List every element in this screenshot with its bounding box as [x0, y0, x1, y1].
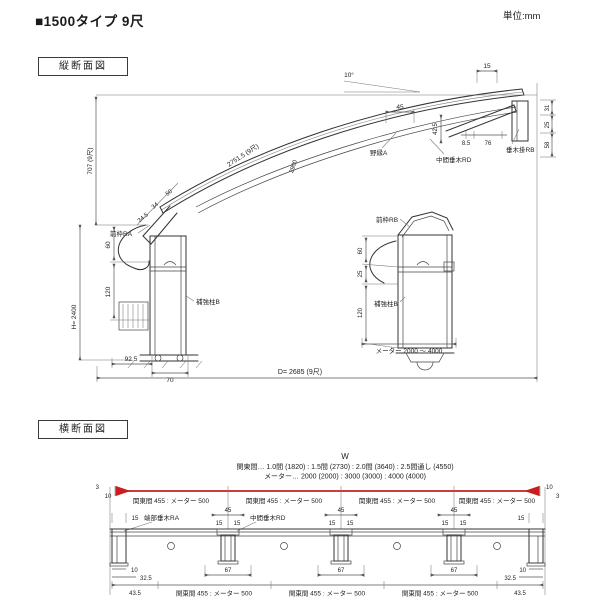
- angle-value: 10°: [344, 71, 354, 79]
- svg-text:67: 67: [338, 568, 345, 574]
- dim-rise: 707 (9尺): [86, 97, 148, 225]
- svg-text:関東間 455 : メーター 500: 関東間 455 : メーター 500: [359, 496, 436, 505]
- svg-text:50: 50: [165, 188, 174, 197]
- svg-text:120: 120: [105, 286, 112, 297]
- svg-text:10: 10: [519, 568, 526, 574]
- svg-text:92.5: 92.5: [125, 356, 138, 363]
- svg-text:60: 60: [105, 241, 112, 249]
- rafter-dims-row: 15 端部垂木RA 45 15 15 中間垂木RD 45 15 15 45 15: [112, 508, 543, 531]
- span-segment-labels: 関東間 455 : メーター 500 関東間 455 : メーター 500 関東…: [115, 486, 540, 529]
- dim-post-height: H= 2400: [71, 225, 132, 360]
- width-note-meter: メーター… 2000 (2000) : 3000 (3000) : 4000 (…: [264, 472, 426, 481]
- section-label-cross: 横断面図: [38, 420, 128, 439]
- svg-text:15: 15: [347, 521, 354, 527]
- svg-text:32.5: 32.5: [504, 576, 516, 582]
- drawing-page: ■1500タイプ 9尺 単位:mm 縦断面図 横断面図: [0, 0, 600, 600]
- svg-text:67: 67: [225, 568, 232, 574]
- svg-text:8.5: 8.5: [462, 141, 471, 147]
- label-post-b-right: 補強柱B: [374, 299, 398, 308]
- dim-left-10: 10: [105, 494, 112, 500]
- dim-right-edge-chain: 31 25 58: [540, 100, 556, 157]
- cross-section-drawing: W 関東間… 1.0間 (1820) : 1.5間 (2730) : 2.0間 …: [0, 445, 600, 600]
- svg-text:58: 58: [545, 141, 551, 148]
- dim-8-5-76: 8.5 76: [461, 131, 507, 147]
- svg-text:関東間 455 : メーター 500: 関東間 455 : メーター 500: [459, 496, 536, 505]
- svg-text:15: 15: [132, 516, 139, 522]
- dim-curve-note: 2900: [289, 159, 299, 174]
- label-mid-rafter-rd: 中間垂木RD: [250, 513, 286, 522]
- label-mid-rafter-rd: 中間垂木RD: [436, 155, 472, 164]
- svg-text:関東間 455 : メーター 500: 関東間 455 : メーター 500: [133, 496, 210, 505]
- svg-text:43.5: 43.5: [514, 591, 526, 597]
- svg-text:43.5: 43.5: [129, 591, 141, 597]
- svg-text:関東間 455 : メーター 500: 関東間 455 : メーター 500: [289, 589, 366, 598]
- width-note-kanto: 関東間… 1.0間 (1820) : 1.5間 (2730) : 2.0間 (3…: [236, 462, 453, 471]
- svg-text:76: 76: [485, 141, 492, 147]
- roof-panel-curves: [160, 89, 524, 213]
- svg-text:31: 31: [545, 104, 551, 111]
- dim-67-228: 67: [205, 565, 251, 577]
- label-front-frame-rb: 前枠RB: [376, 215, 398, 224]
- mid-rafter-454: [443, 529, 465, 564]
- svg-text:32.5: 32.5: [140, 576, 152, 582]
- svg-text:15: 15: [483, 63, 491, 70]
- svg-text:H= 2400: H= 2400: [71, 304, 78, 329]
- svg-text:120: 120: [358, 307, 364, 318]
- longitudinal-section-drawing: 10° 2751.5 (9尺) 2900 707 (9尺) H= 2400 60…: [0, 55, 600, 405]
- svg-text:D= 2685 (9尺): D= 2685 (9尺): [278, 368, 322, 376]
- roof-angle-mark: 10°: [344, 71, 420, 92]
- label-rafter-hook-rb: 垂木掛RB: [506, 145, 535, 154]
- dim-67-341: 67: [318, 565, 364, 577]
- mid-rafter-228: [217, 529, 239, 564]
- dim-15-top: 15: [477, 63, 497, 83]
- svg-text:15: 15: [460, 521, 467, 527]
- svg-text:707 (9尺): 707 (9尺): [86, 147, 94, 174]
- svg-text:15: 15: [442, 521, 449, 527]
- svg-text:15: 15: [329, 521, 336, 527]
- svg-text:45: 45: [396, 104, 404, 111]
- dim-base-92-5-70: 92.5 70: [112, 355, 188, 384]
- part-labels: 前枠RA 野縁A 中間垂木RD 垂木掛RB 前枠RB 補強柱B 補強柱B: [110, 129, 535, 308]
- dim-42-5: 42.5: [433, 115, 441, 143]
- bottom-chain: 43.5 関東間 455 : メーター 500 関東間 455 : メーター 5…: [112, 581, 543, 598]
- dim-right-10: 10: [546, 485, 553, 491]
- svg-text:45: 45: [451, 508, 458, 514]
- dim-depth: D= 2685 (9尺): [97, 366, 537, 382]
- svg-text:45: 45: [338, 508, 345, 514]
- bottom-dims: 10 32.5 10 32.5 67 67: [112, 565, 543, 598]
- svg-text:10: 10: [131, 568, 138, 574]
- svg-text:25: 25: [358, 270, 364, 277]
- svg-text:60: 60: [358, 247, 364, 254]
- unit-label: 単位:mm: [503, 8, 540, 22]
- front-frame-and-post-right-detail: [370, 212, 454, 370]
- w-label: W: [341, 452, 349, 461]
- svg-text:67: 67: [451, 568, 458, 574]
- rafter-hook-detail: [96, 83, 537, 382]
- svg-text:15: 15: [216, 521, 223, 527]
- svg-text:関東間 455 : メーター 500: 関東間 455 : メーター 500: [402, 589, 479, 598]
- svg-text:15: 15: [234, 521, 241, 527]
- label-end-rafter-ra: 端部垂木RA: [144, 513, 180, 522]
- svg-text:関東間 455 : メーター 500: 関東間 455 : メーター 500: [176, 589, 253, 598]
- dim-right-detail-chain: 60 25 120: [358, 236, 398, 348]
- svg-text:45: 45: [225, 508, 232, 514]
- page-title: ■1500タイプ 9尺: [35, 10, 144, 30]
- svg-text:42.5: 42.5: [433, 123, 439, 135]
- dim-left-3: 3: [96, 485, 100, 491]
- label-front-frame-ra: 前枠RA: [110, 229, 133, 238]
- svg-text:25: 25: [545, 121, 551, 128]
- dim-meter-range: メーター 2000 〜 4000: [362, 338, 456, 355]
- svg-text:メーター 2000 〜 4000: メーター 2000 〜 4000: [376, 346, 443, 355]
- dim-67-454: 67: [431, 565, 477, 577]
- label-furring-a: 野縁A: [370, 148, 388, 157]
- dim-right-3: 3: [556, 494, 560, 500]
- mid-rafter-341: [330, 529, 352, 564]
- label-post-b-left: 補強柱B: [196, 297, 220, 306]
- svg-text:関東間 455 : メーター 500: 関東間 455 : メーター 500: [246, 496, 323, 505]
- svg-text:15: 15: [518, 516, 525, 522]
